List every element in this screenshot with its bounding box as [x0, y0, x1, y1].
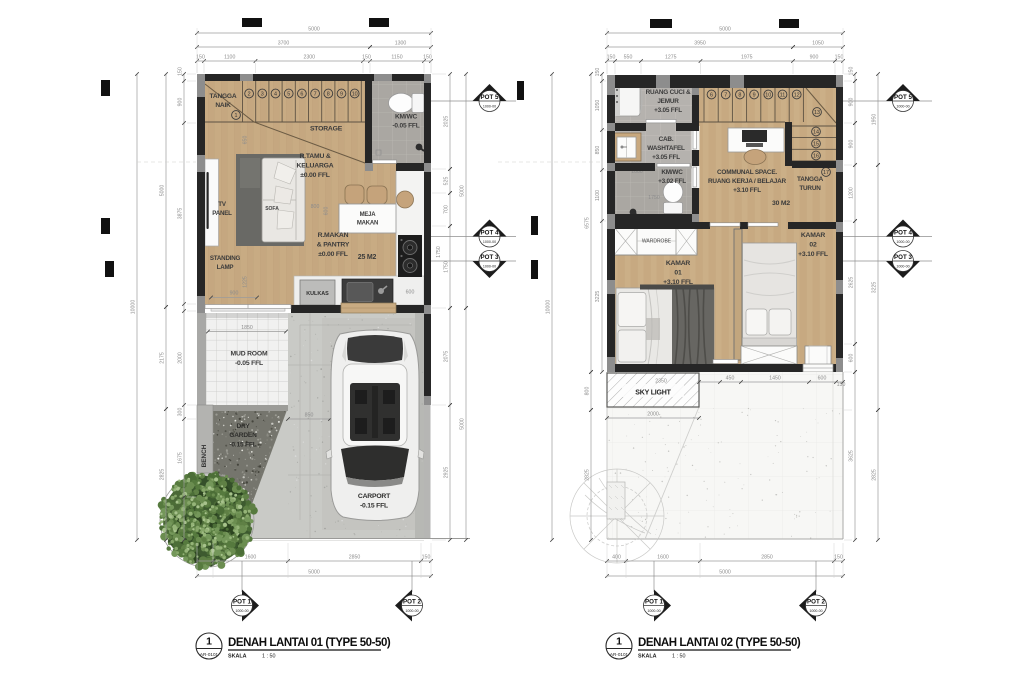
svg-text:2300: 2300 — [303, 55, 315, 61]
svg-text:1450: 1450 — [769, 376, 781, 382]
svg-text:7: 7 — [314, 92, 317, 98]
svg-text:650: 650 — [243, 136, 249, 145]
svg-text:DENAH LANTAI 02 (TYPE 50-50): DENAH LANTAI 02 (TYPE 50-50) — [638, 637, 801, 649]
svg-text:150: 150 — [834, 555, 843, 561]
svg-text:SOFA: SOFA — [265, 206, 279, 212]
svg-text:6: 6 — [300, 92, 303, 98]
svg-text:5: 5 — [287, 92, 290, 98]
svg-text:850: 850 — [305, 413, 314, 419]
svg-text:150: 150 — [595, 68, 601, 77]
svg-text:1950: 1950 — [872, 114, 878, 126]
svg-text:1: 1 — [206, 636, 212, 648]
svg-text:SKY LIGHT: SKY LIGHT — [635, 390, 671, 397]
svg-text:1750: 1750 — [648, 195, 660, 201]
svg-text:POT 2: POT 2 — [403, 599, 421, 606]
svg-text:5000: 5000 — [308, 27, 320, 33]
svg-text:1600: 1600 — [245, 555, 257, 561]
svg-text:1000-00: 1000-00 — [483, 265, 496, 269]
svg-text:700: 700 — [444, 205, 450, 214]
svg-text:150: 150 — [196, 55, 205, 61]
svg-text:1 : 50: 1 : 50 — [262, 654, 276, 660]
svg-text:2925: 2925 — [444, 467, 450, 479]
svg-text:10: 10 — [765, 93, 771, 99]
svg-text:1150: 1150 — [391, 55, 402, 61]
svg-text:POT 1: POT 1 — [645, 599, 663, 606]
svg-text:450: 450 — [726, 376, 735, 382]
svg-text:1050: 1050 — [812, 41, 824, 47]
svg-text:1 : 50: 1 : 50 — [672, 654, 686, 660]
svg-text:POT 3: POT 3 — [894, 254, 912, 261]
svg-text:2850: 2850 — [761, 555, 773, 561]
svg-text:1000-00: 1000-00 — [809, 609, 822, 613]
svg-text:POT 2: POT 2 — [807, 599, 825, 606]
svg-text:POT 1: POT 1 — [233, 599, 251, 606]
svg-text:30 M2: 30 M2 — [772, 200, 790, 207]
svg-text:1000-00: 1000-00 — [896, 240, 909, 244]
svg-text:STORAGE: STORAGE — [310, 126, 343, 133]
svg-text:150: 150 — [607, 55, 616, 61]
svg-text:1000-00: 1000-00 — [896, 265, 909, 269]
svg-text:1000-00: 1000-00 — [896, 105, 909, 109]
svg-text:600: 600 — [406, 290, 415, 296]
svg-text:2000: 2000 — [178, 352, 184, 364]
svg-text:150: 150 — [178, 67, 184, 76]
svg-text:R.MAKAN& PANTRY±0.00 FFL: R.MAKAN& PANTRY±0.00 FFL — [317, 232, 350, 258]
svg-text:WARDROBE: WARDROBE — [642, 239, 672, 245]
svg-text:5000: 5000 — [308, 570, 320, 576]
svg-text:1000-00: 1000-00 — [235, 609, 248, 613]
svg-text:9: 9 — [753, 93, 756, 99]
svg-text:1100: 1100 — [224, 55, 235, 61]
svg-text:POT 5: POT 5 — [481, 94, 499, 101]
svg-text:3: 3 — [261, 92, 264, 98]
svg-text:900: 900 — [178, 98, 184, 107]
svg-text:400: 400 — [612, 555, 621, 561]
svg-text:13: 13 — [814, 110, 820, 116]
svg-text:525: 525 — [444, 177, 450, 186]
svg-text:2000: 2000 — [647, 412, 659, 418]
svg-text:300: 300 — [178, 408, 184, 417]
svg-text:2025: 2025 — [444, 116, 450, 128]
svg-text:6575: 6575 — [585, 217, 591, 229]
svg-text:10000: 10000 — [131, 300, 137, 315]
svg-text:POT 4: POT 4 — [894, 230, 912, 237]
svg-text:3700: 3700 — [278, 41, 290, 47]
svg-text:5000: 5000 — [460, 418, 466, 430]
svg-text:5000: 5000 — [460, 185, 466, 197]
svg-text:1000-00: 1000-00 — [405, 609, 418, 613]
svg-text:550: 550 — [624, 55, 633, 61]
svg-text:3225: 3225 — [872, 282, 878, 294]
svg-text:1000-00: 1000-00 — [483, 240, 496, 244]
svg-text:150: 150 — [837, 382, 846, 388]
svg-text:5000: 5000 — [160, 185, 166, 197]
svg-text:2: 2 — [248, 92, 251, 98]
svg-text:2825: 2825 — [872, 469, 878, 481]
svg-text:16: 16 — [813, 154, 819, 160]
svg-text:600: 600 — [818, 376, 827, 382]
svg-text:900: 900 — [810, 55, 819, 61]
svg-text:2175: 2175 — [160, 352, 166, 364]
svg-text:800: 800 — [311, 204, 320, 210]
svg-text:2825: 2825 — [160, 469, 166, 481]
svg-text:KULKAS: KULKAS — [306, 291, 329, 297]
svg-text:800: 800 — [585, 387, 591, 396]
svg-text:14: 14 — [813, 130, 819, 136]
svg-text:3950: 3950 — [694, 41, 706, 47]
svg-text:1850: 1850 — [241, 325, 253, 331]
svg-text:AR-0101: AR-0101 — [200, 652, 219, 657]
svg-text:2075: 2075 — [444, 351, 450, 363]
svg-text:11: 11 — [780, 93, 786, 99]
svg-text:2850: 2850 — [349, 555, 361, 561]
svg-text:3625: 3625 — [849, 450, 855, 462]
svg-text:6: 6 — [710, 93, 713, 99]
svg-text:2825: 2825 — [585, 469, 591, 481]
svg-text:1000-00: 1000-00 — [483, 105, 496, 109]
svg-text:1: 1 — [235, 113, 238, 119]
svg-text:3875: 3875 — [178, 208, 184, 220]
svg-text:POT 5: POT 5 — [894, 94, 912, 101]
svg-text:1600: 1600 — [657, 555, 669, 561]
svg-text:4: 4 — [274, 92, 277, 98]
svg-text:POT 3: POT 3 — [481, 254, 499, 261]
svg-text:1675: 1675 — [178, 452, 184, 464]
svg-text:2350: 2350 — [655, 379, 667, 385]
svg-text:1000-00: 1000-00 — [647, 609, 660, 613]
svg-text:12: 12 — [794, 93, 800, 99]
svg-text:1050: 1050 — [595, 100, 601, 112]
svg-text:3225: 3225 — [595, 291, 601, 303]
svg-text:900: 900 — [849, 98, 855, 107]
svg-text:1975: 1975 — [741, 55, 753, 61]
svg-text:10000: 10000 — [546, 300, 552, 315]
svg-text:8: 8 — [327, 92, 330, 98]
svg-text:7: 7 — [724, 93, 727, 99]
svg-text:900: 900 — [849, 140, 855, 149]
svg-text:1225: 1225 — [243, 276, 249, 288]
svg-text:5000: 5000 — [719, 570, 731, 576]
svg-text:600: 600 — [324, 207, 330, 216]
svg-text:BENCH: BENCH — [201, 444, 208, 467]
svg-text:9: 9 — [340, 92, 343, 98]
svg-text:1: 1 — [616, 636, 622, 648]
svg-text:1200: 1200 — [849, 187, 855, 199]
svg-text:1300: 1300 — [395, 41, 407, 47]
svg-text:AR-0101: AR-0101 — [610, 652, 629, 657]
svg-text:1275: 1275 — [665, 55, 677, 61]
svg-text:SKALA: SKALA — [228, 654, 247, 660]
svg-text:25 M2: 25 M2 — [358, 254, 377, 261]
svg-text:8: 8 — [738, 93, 741, 99]
svg-text:DENAH LANTAI 01 (TYPE 50-50): DENAH LANTAI 01 (TYPE 50-50) — [228, 637, 391, 649]
svg-text:150: 150 — [362, 55, 371, 61]
svg-text:R.TAMU &KELUARGA±0.00 FFL: R.TAMU &KELUARGA±0.00 FFL — [297, 153, 334, 179]
svg-text:17: 17 — [823, 170, 829, 176]
svg-text:150: 150 — [835, 55, 844, 61]
svg-text:2625: 2625 — [849, 277, 855, 289]
svg-text:1750: 1750 — [436, 246, 442, 258]
svg-text:150: 150 — [422, 555, 431, 561]
svg-text:900: 900 — [230, 291, 239, 297]
svg-text:SKALA: SKALA — [638, 654, 657, 660]
svg-text:1750: 1750 — [444, 261, 450, 273]
svg-text:600: 600 — [849, 354, 855, 363]
svg-text:1100: 1100 — [595, 190, 601, 201]
svg-text:15: 15 — [813, 142, 819, 148]
svg-text:850: 850 — [595, 146, 601, 155]
svg-text:10: 10 — [352, 92, 358, 98]
svg-text:5000: 5000 — [719, 27, 731, 33]
svg-text:POT 4: POT 4 — [481, 230, 499, 237]
svg-text:150: 150 — [423, 55, 432, 61]
